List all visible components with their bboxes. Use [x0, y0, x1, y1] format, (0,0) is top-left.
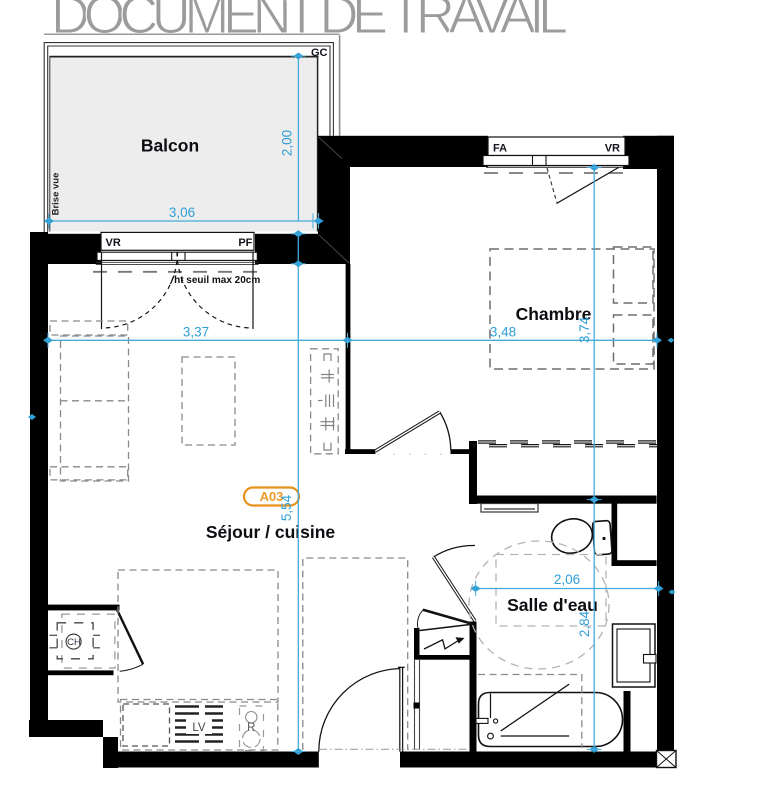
svg-text:GC: GC: [311, 47, 328, 59]
svg-text:Séjour / cuisine: Séjour / cuisine: [206, 522, 336, 542]
svg-text:5,54: 5,54: [279, 494, 294, 521]
svg-text:2,06: 2,06: [554, 572, 580, 587]
svg-text:VR: VR: [605, 143, 620, 155]
svg-text:2,84: 2,84: [577, 610, 592, 637]
svg-text:VR: VR: [106, 237, 121, 249]
svg-text:3,06: 3,06: [169, 205, 195, 220]
svg-text:PF: PF: [238, 237, 252, 249]
svg-text:3,74: 3,74: [577, 316, 592, 343]
svg-text:3,37: 3,37: [183, 325, 209, 340]
svg-text:ht seuil max 20cm: ht seuil max 20cm: [174, 275, 260, 286]
svg-text:2,00: 2,00: [280, 130, 295, 156]
svg-text:3,48: 3,48: [490, 325, 516, 340]
svg-text:DOCUMENT DE TRAVAIL: DOCUMENT DE TRAVAIL: [51, 0, 568, 45]
svg-text:R: R: [247, 722, 255, 734]
svg-text:FA: FA: [493, 143, 507, 155]
svg-text:CH: CH: [67, 637, 81, 648]
svg-text:Brise vue: Brise vue: [51, 173, 62, 216]
svg-text:Balcon: Balcon: [141, 136, 199, 156]
svg-text:LV: LV: [192, 722, 206, 734]
